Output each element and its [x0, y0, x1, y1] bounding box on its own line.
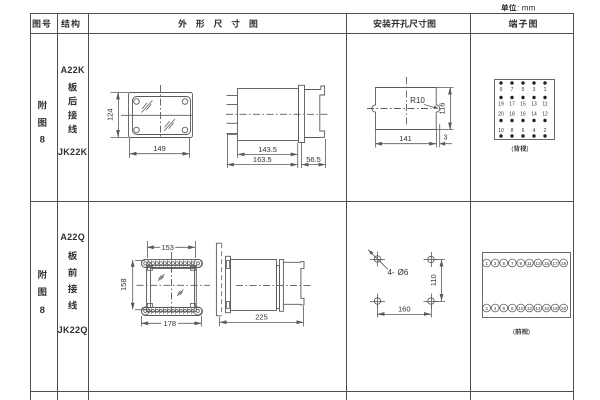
svg-text:116: 116: [438, 103, 447, 115]
svg-text:160: 160: [398, 305, 411, 314]
svg-text:149: 149: [153, 144, 166, 153]
svg-text:163.5: 163.5: [253, 155, 272, 164]
svg-text:15: 15: [544, 261, 550, 266]
svg-text:225: 225: [255, 313, 268, 322]
svg-text:110: 110: [429, 274, 438, 286]
svg-text:6: 6: [502, 306, 505, 311]
svg-text:): ): [528, 329, 530, 336]
svg-text:JK22Q: JK22Q: [58, 325, 88, 335]
svg-text:18: 18: [553, 306, 559, 311]
svg-text:20: 20: [498, 112, 504, 118]
svg-text:3: 3: [533, 87, 536, 93]
svg-text:10: 10: [518, 306, 524, 311]
svg-text:20: 20: [561, 306, 567, 311]
svg-text:JK22K: JK22K: [58, 147, 88, 157]
svg-text:3: 3: [444, 135, 448, 142]
svg-text:Ø6: Ø6: [398, 268, 409, 277]
svg-text:18: 18: [509, 112, 515, 118]
svg-text:56.5: 56.5: [306, 155, 321, 164]
svg-text:13: 13: [535, 261, 541, 266]
svg-text:15: 15: [520, 102, 526, 108]
svg-text:11: 11: [542, 102, 547, 108]
svg-text:178: 178: [164, 319, 177, 328]
svg-text:11: 11: [527, 261, 532, 266]
svg-text:14: 14: [531, 112, 537, 118]
svg-text:10: 10: [498, 128, 504, 134]
svg-text:14: 14: [535, 306, 541, 311]
svg-text:143.5: 143.5: [258, 145, 277, 154]
svg-text:9: 9: [520, 261, 523, 266]
svg-text:5: 5: [502, 261, 505, 266]
svg-text:4: 4: [533, 128, 536, 134]
svg-text:16: 16: [544, 306, 550, 311]
svg-text:1: 1: [485, 261, 488, 266]
svg-text:13: 13: [531, 102, 537, 108]
svg-text:6: 6: [522, 128, 525, 134]
svg-text:A22Q: A22Q: [60, 232, 85, 242]
svg-text:9: 9: [500, 87, 503, 93]
svg-text:2: 2: [485, 306, 488, 311]
svg-text:4-: 4-: [387, 268, 394, 277]
svg-text:): ): [526, 146, 528, 153]
svg-text:1: 1: [544, 87, 547, 93]
svg-text:8: 8: [40, 305, 45, 316]
svg-text:12: 12: [527, 306, 533, 311]
svg-text:5: 5: [522, 87, 525, 93]
svg-text:153: 153: [161, 243, 174, 252]
svg-text:141: 141: [399, 134, 412, 143]
svg-text:16: 16: [520, 112, 526, 118]
svg-text:A22K: A22K: [61, 65, 85, 75]
svg-text:8: 8: [511, 128, 514, 134]
svg-text:12: 12: [542, 112, 548, 118]
svg-text:7: 7: [511, 87, 514, 93]
svg-text:R10: R10: [410, 96, 425, 105]
svg-text:17: 17: [509, 102, 515, 108]
svg-text:3: 3: [494, 261, 497, 266]
svg-text:7: 7: [511, 261, 514, 266]
svg-text:19: 19: [561, 261, 567, 266]
svg-text:: mm: : mm: [517, 2, 536, 12]
svg-text:19: 19: [498, 102, 504, 108]
svg-text:4: 4: [494, 306, 497, 311]
svg-text:158: 158: [119, 278, 128, 291]
svg-text:8: 8: [511, 306, 514, 311]
svg-text:8: 8: [40, 135, 45, 146]
svg-text:17: 17: [553, 261, 559, 266]
svg-text:2: 2: [544, 128, 547, 134]
svg-text:124: 124: [106, 108, 115, 121]
